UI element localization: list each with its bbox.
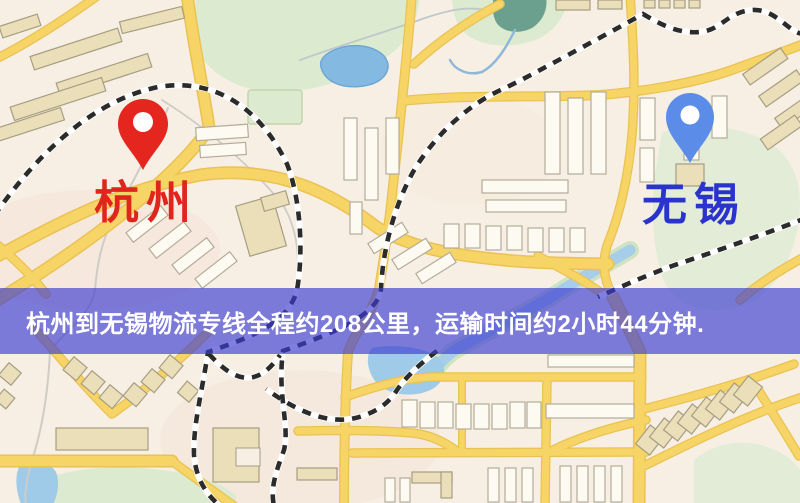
map-screenshot: 杭州 无锡 杭州到无锡物流专线全程约208公里，运输时间约2小时44分钟. — [0, 0, 800, 503]
pond — [321, 46, 388, 87]
map-canvas: 杭州 无锡 — [0, 0, 800, 503]
origin-city-label: 杭州 — [94, 178, 198, 228]
route-info-text: 杭州到无锡物流专线全程约208公里，运输时间约2小时44分钟. — [26, 304, 704, 339]
route-info-banner: 杭州到无锡物流专线全程约208公里，运输时间约2小时44分钟. — [0, 288, 800, 354]
destination-city-label: 无锡 — [642, 180, 746, 230]
destination-pin-hole — [681, 106, 700, 125]
origin-pin-hole — [133, 112, 153, 132]
